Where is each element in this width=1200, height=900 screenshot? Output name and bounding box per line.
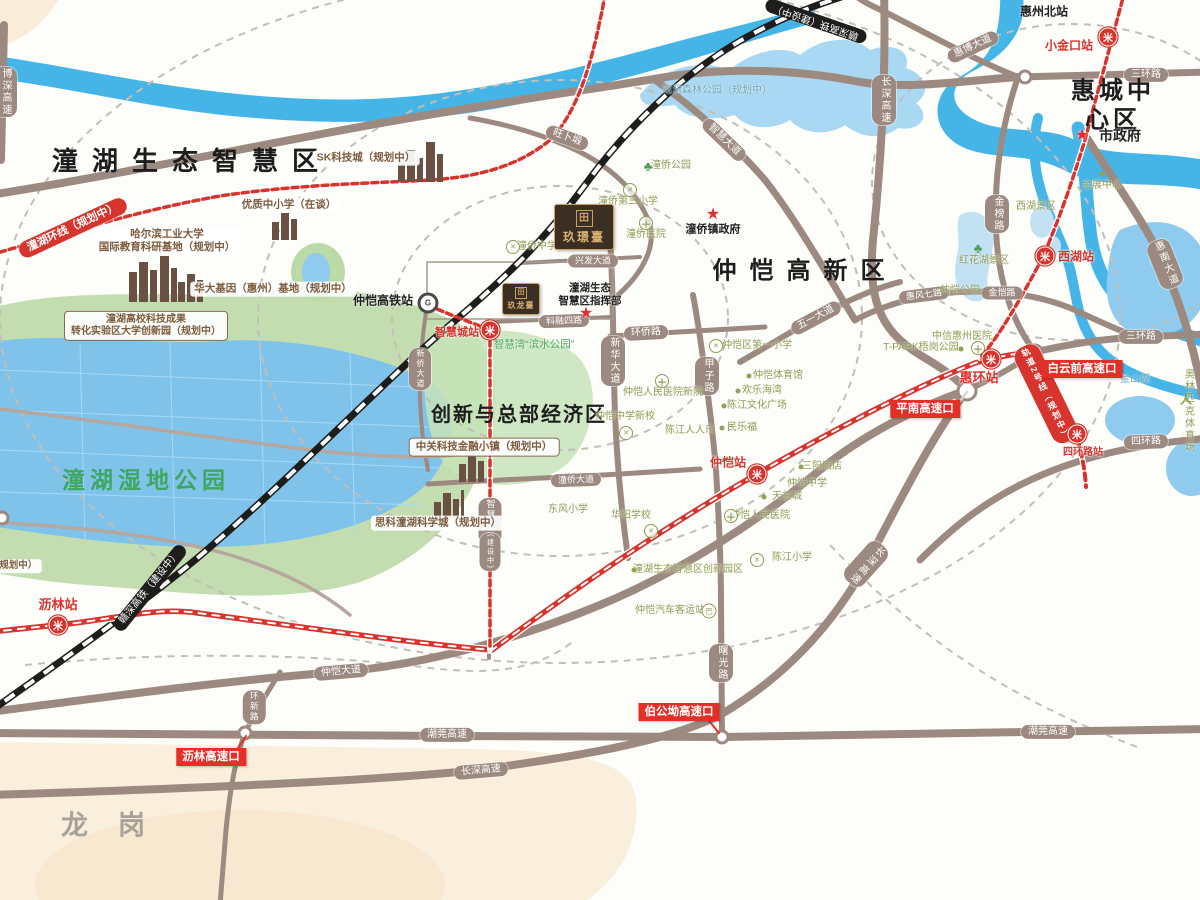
road-chaowan-expwy-west: 潮莞高速 — [420, 728, 474, 742]
station-huizhou-north: 惠州北站 — [1020, 5, 1068, 20]
road-huanqiao: 环侨路 — [624, 325, 669, 341]
star-icon: ★ — [706, 204, 720, 224]
proj-quality-school: 优质中小学（在谈） — [238, 198, 341, 213]
area-tonghu-wetland-park: 潼湖湿地公园 — [62, 466, 230, 494]
region-tonghu-eco-smart: 潼湖生态智慧区 — [52, 146, 332, 178]
poi-jinshan-lake: 金山湖 — [1120, 374, 1150, 386]
region-longgang: 龙岗 — [61, 810, 175, 843]
school-icon: ✕ — [623, 183, 637, 197]
metro-icon: 米 — [1099, 28, 1118, 47]
poi-chenjiang-renrenle: 陈江人人乐 — [665, 425, 715, 437]
dot-icon — [1100, 172, 1105, 177]
poi-city-government: 市政府 — [1099, 127, 1141, 144]
road-huanxin: 环新路 — [243, 690, 266, 724]
station-lilin: 沥林站 — [38, 597, 77, 613]
seal-emblem-icon: 田 — [515, 287, 527, 299]
road-boshen-expwy: 博深高速 — [0, 67, 17, 117]
jiujingtai-logo-title: 玖璟臺 — [563, 228, 605, 245]
poi-zk-people-hospital-new: 仲恺人民医院新院 — [623, 387, 703, 399]
bus-icon: 巴 — [702, 604, 717, 619]
dot-icon — [720, 426, 725, 431]
station-xihu: 西湖站 — [1058, 250, 1094, 265]
metro-icon: 米 — [982, 350, 1001, 369]
metro-icon: 米 — [1068, 425, 1087, 444]
dot-icon — [632, 568, 637, 573]
hospital-icon: ＋ — [971, 341, 985, 355]
region-zhongkai-hitech: 仲恺高新区 — [713, 256, 898, 285]
school-icon: ✕ — [619, 426, 633, 440]
poi-zk-people-hospital: 仲恺人民医院 — [730, 510, 790, 522]
poi-minlefu: 民乐福 — [727, 422, 757, 434]
road-jinbang: 金榜路 — [985, 195, 1009, 233]
poi-jinzhan-center: 金展中心 — [1082, 180, 1122, 192]
poi-zhongkai-park: 仲恺公园 — [940, 285, 980, 297]
dot-icon — [799, 465, 804, 470]
station-xiaojinkou: 小金口站 — [1045, 39, 1093, 54]
school-icon: ✕ — [750, 553, 764, 567]
poi-xihu-scenic: 西湖景区 — [1016, 201, 1056, 213]
poi-smartzone-innovation-park: 潼湖生态智慧区创新园区 — [633, 564, 743, 576]
road-jinkai: 金恺路 — [981, 287, 1022, 300]
station-sihuanlu: 四环路站 — [1063, 447, 1103, 459]
exit-lilin: 沥林高速口 — [176, 748, 246, 766]
poi-tongqiao-hospital: 潼侨医院 — [626, 229, 666, 241]
person-icon: 人 — [1180, 391, 1192, 408]
exit-baiyunqian: 白云前高速口 — [1042, 360, 1123, 378]
poi-tongqiao-middle-school: 潼侨中学 — [517, 241, 557, 253]
poi-zhongkai-gym: 仲恺体育馆 — [753, 370, 803, 382]
station-huihuan: 惠环站 — [959, 370, 998, 386]
proj-town-clipped: 小镇（规划中） — [0, 559, 41, 573]
station-zhihuicheng: 智慧城站 — [435, 326, 479, 339]
road-shuguang: 曙光路 — [709, 644, 733, 682]
metro-icon: 米 — [481, 321, 500, 340]
poi-tongqiao-town-gov: 潼侨镇政府 — [686, 223, 741, 236]
proj-zhongguan-fintech-town: 中关科技金融小镇（规划中） — [409, 438, 560, 457]
poi-chenjiang-culture-plaza: 陈江文化广场 — [727, 400, 787, 412]
star-icon: ★ — [579, 303, 593, 323]
poi-huayang-school: 华阳学校 — [611, 510, 651, 522]
poi-honghua-lake-scenic: 红花湖景区 — [959, 255, 1009, 267]
rail-icon: G — [418, 293, 439, 314]
road-chaowan-expwy-east: 潮莞高速 — [1021, 725, 1075, 739]
poi-zk-middle-school-new: 仲恺中学新校 — [595, 411, 655, 423]
poi-tianyicheng: 天益城 — [772, 491, 802, 503]
poi-guandong-forest-park: 观洞森林公园（规划中） — [662, 85, 772, 97]
metro-icon: 米 — [49, 616, 68, 635]
dot-icon — [959, 347, 964, 352]
star-icon: ★ — [1075, 125, 1089, 145]
poi-sanyang-hotel: 三阳酒店 — [802, 461, 842, 473]
poi-tongqiao-park: 潼侨公园 — [651, 160, 691, 172]
exit-bogong'ao: 伯公坳高速口 — [639, 703, 720, 721]
dot-icon — [747, 374, 752, 379]
school-icon: ✕ — [644, 524, 658, 538]
proj-university-innovation-park: 潼湖高校科技成果 转化实验区大学创新园（规划中） — [64, 311, 228, 341]
road-xingfa-avenue: 兴发大道 — [568, 255, 618, 268]
metro-icon: 米 — [1036, 247, 1055, 266]
proj-sk-tech-city: SK科技城（规划中） — [313, 151, 420, 166]
seal-emblem-icon: 田 — [576, 210, 593, 227]
proj-cisco-science-city: 思科潼湖科学城（规划中） — [371, 516, 505, 531]
dot-icon — [762, 495, 767, 500]
station-zhongkai: 仲恺站 — [710, 456, 746, 471]
road-sanhuan-east: 三环路 — [1119, 330, 1163, 344]
jiulongtai-logo-title: 玖龙臺 — [508, 300, 535, 311]
poi-dongfeng-primary: 东风小学 — [548, 504, 588, 516]
region-innovation-hq-economy: 创新与总部经济区 — [431, 403, 607, 427]
road-tongqiao-avenue: 潼侨大道 — [551, 473, 601, 488]
proj-bgi-base: 华大基因（惠州）基地（规划中） — [190, 282, 356, 297]
poi-zhongkai-1st-primary: 仲恺区第一小学 — [722, 340, 792, 352]
poi-huanle-haiwan: 欢乐海湾 — [742, 385, 782, 397]
poi-olympic-stadium: 奥林匹克体育场 — [1185, 369, 1195, 454]
road-sihuan: 四环路 — [1124, 434, 1168, 450]
road-xinqiao-avenue: 新侨大道 — [409, 348, 431, 390]
poi-tpark-wugang-park: T-PARK梧岗公园 — [883, 342, 958, 354]
school-icon: ✕ — [506, 240, 520, 254]
tree-icon: ♣ — [974, 241, 983, 256]
dot-icon — [722, 404, 727, 409]
road-zhihui-east-status: (建设中) — [480, 533, 501, 571]
hospital-icon: ＋ — [655, 374, 669, 388]
proj-hit-base: 哈尔滨工业大学 国际教育科研基地（规划中） — [95, 227, 240, 255]
exit-pingnan: 平南高速口 — [890, 400, 960, 418]
location-map: 田 玖璟臺 田 玖龙臺 潼湖生态智慧区惠城中心区仲恺高新区创新与总部经济区龙岗潼… — [0, 0, 1200, 900]
hospital-icon: ＋ — [639, 216, 653, 230]
jiulongtai-project-logo: 田 玖龙臺 — [502, 283, 540, 315]
jiujingtai-project-logo: 田 玖璟臺 — [554, 204, 614, 250]
hospital-icon: ＋ — [724, 509, 738, 523]
metro-icon: 米 — [748, 465, 767, 484]
road-xinhua-avenue: 新华大道 — [601, 336, 625, 386]
poi-zhihuiwan-waterfront-park: 智慧湾“滨水公园” — [494, 339, 575, 352]
school-icon: ✕ — [709, 339, 723, 353]
tree-icon: ♣ — [644, 159, 653, 174]
poi-zhongkai-middle-school: 仲恺中学 — [787, 478, 827, 490]
road-changshen-expwy-north: 长深高速 — [872, 75, 896, 125]
dot-icon — [736, 389, 741, 394]
poi-chenjiang-primary: 陈江小学 — [772, 552, 812, 564]
station-zhongkai-hsr: 仲恺高铁站 — [353, 294, 413, 309]
poi-zk-bus-terminal: 仲恺汽车客运站 — [635, 605, 705, 617]
